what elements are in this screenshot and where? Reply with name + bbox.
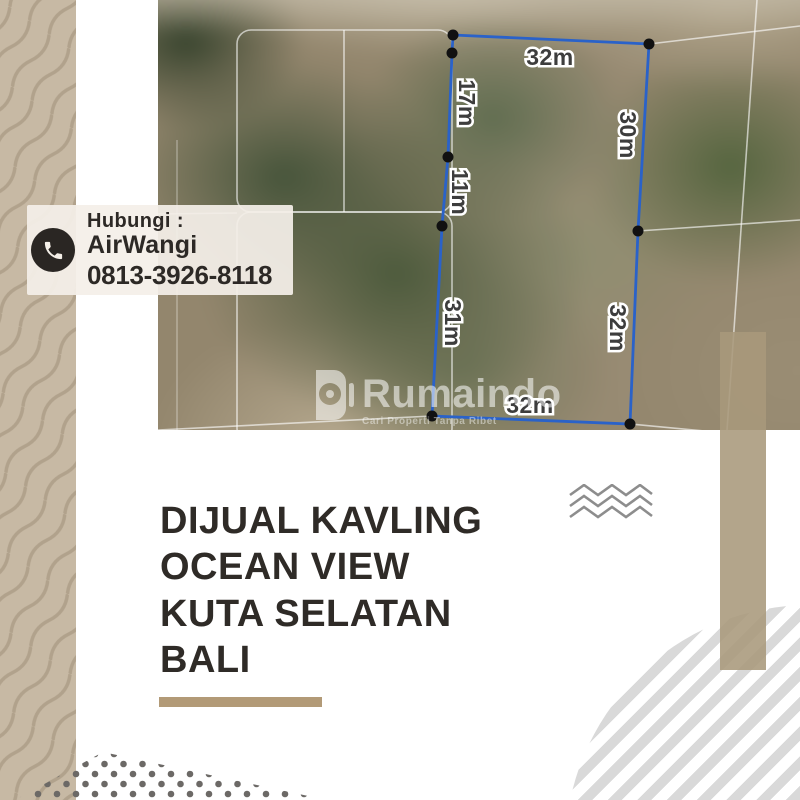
title-line-3: KUTA SELATAN <box>160 591 600 637</box>
watermark: Rumaindo Cari Properti Tanpa Ribet <box>306 368 562 427</box>
measurement-label-right-lower: 32m <box>605 304 631 352</box>
left-wavy-strip <box>0 0 76 800</box>
listing-title: DIJUAL KAVLING OCEAN VIEW KUTA SELATAN B… <box>160 498 600 707</box>
title-underline-bar <box>159 697 322 707</box>
measurement-label-left-upper: 17m <box>454 79 480 127</box>
title-line-1: DIJUAL KAVLING <box>160 498 600 544</box>
tan-accent-bar <box>720 332 766 670</box>
title-line-4: BALI <box>160 637 600 683</box>
title-line-2: OCEAN VIEW <box>160 544 600 590</box>
dots-triangle-decoration <box>15 750 327 800</box>
phone-icon <box>31 228 75 272</box>
wavy-pattern <box>0 0 76 800</box>
contact-phone-number: 0813-3926-8118 <box>87 261 272 289</box>
contact-badge: Hubungi : AirWangi 0813-3926-8118 <box>27 205 293 295</box>
rumaindo-logo-icon <box>306 368 354 422</box>
contact-name: AirWangi <box>87 232 272 259</box>
measurement-label-left-middle: 11m <box>447 169 473 215</box>
watermark-tagline: Cari Properti Tanpa Ribet <box>362 416 562 427</box>
measurement-label-top: 32m <box>526 44 574 70</box>
flyer-canvas: 32m 17m 30m 11m 31m 32m 32m Rumaindo Car… <box>0 0 800 800</box>
contact-label: Hubungi : <box>87 211 272 233</box>
measurement-label-right-upper: 30m <box>615 111 641 159</box>
watermark-brand: Rumaindo <box>362 374 562 414</box>
measurement-label-left-lower: 31m <box>440 299 466 347</box>
